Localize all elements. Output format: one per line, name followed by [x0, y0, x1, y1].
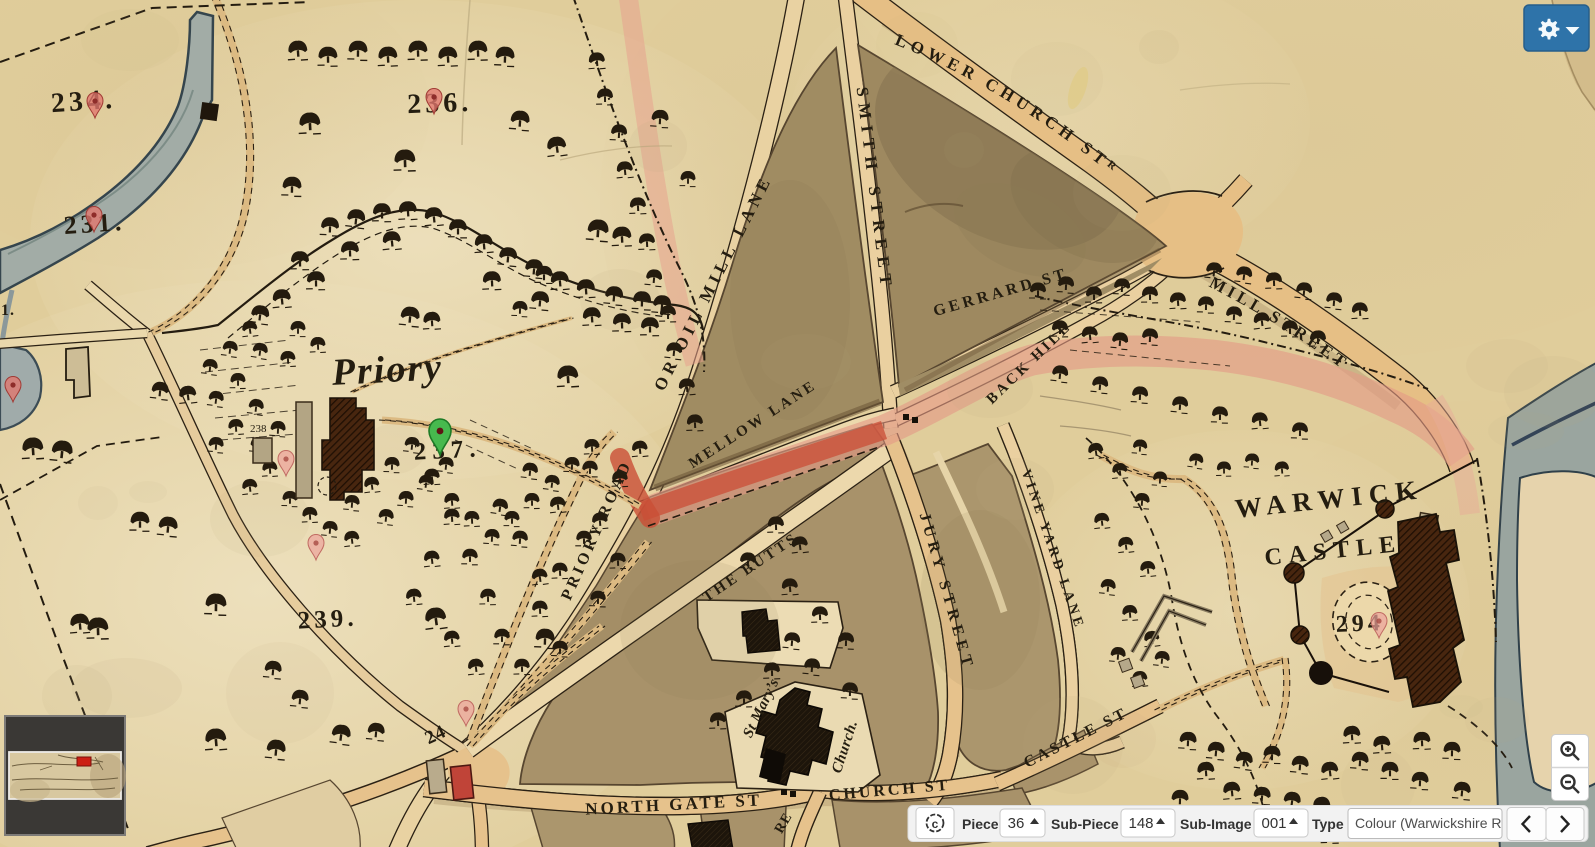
svg-text:c: c — [932, 817, 939, 831]
svg-text:Priory: Priory — [330, 346, 444, 394]
svg-text:234.: 234. — [50, 84, 117, 119]
svg-text:Colour (Warwickshire Reco: Colour (Warwickshire Reco — [1355, 815, 1524, 831]
svg-text:239.: 239. — [297, 604, 358, 634]
svg-text:238: 238 — [250, 423, 267, 435]
svg-text:001: 001 — [1261, 815, 1286, 832]
svg-text:36: 36 — [1008, 815, 1025, 832]
svg-text:Piece: Piece — [962, 816, 999, 832]
svg-text:Type: Type — [1312, 816, 1344, 832]
svg-text:1.: 1. — [1, 302, 15, 319]
svg-text:Sub-Piece: Sub-Piece — [1051, 816, 1119, 832]
svg-text:148: 148 — [1128, 815, 1153, 832]
svg-text:Sub-Image: Sub-Image — [1180, 816, 1252, 832]
